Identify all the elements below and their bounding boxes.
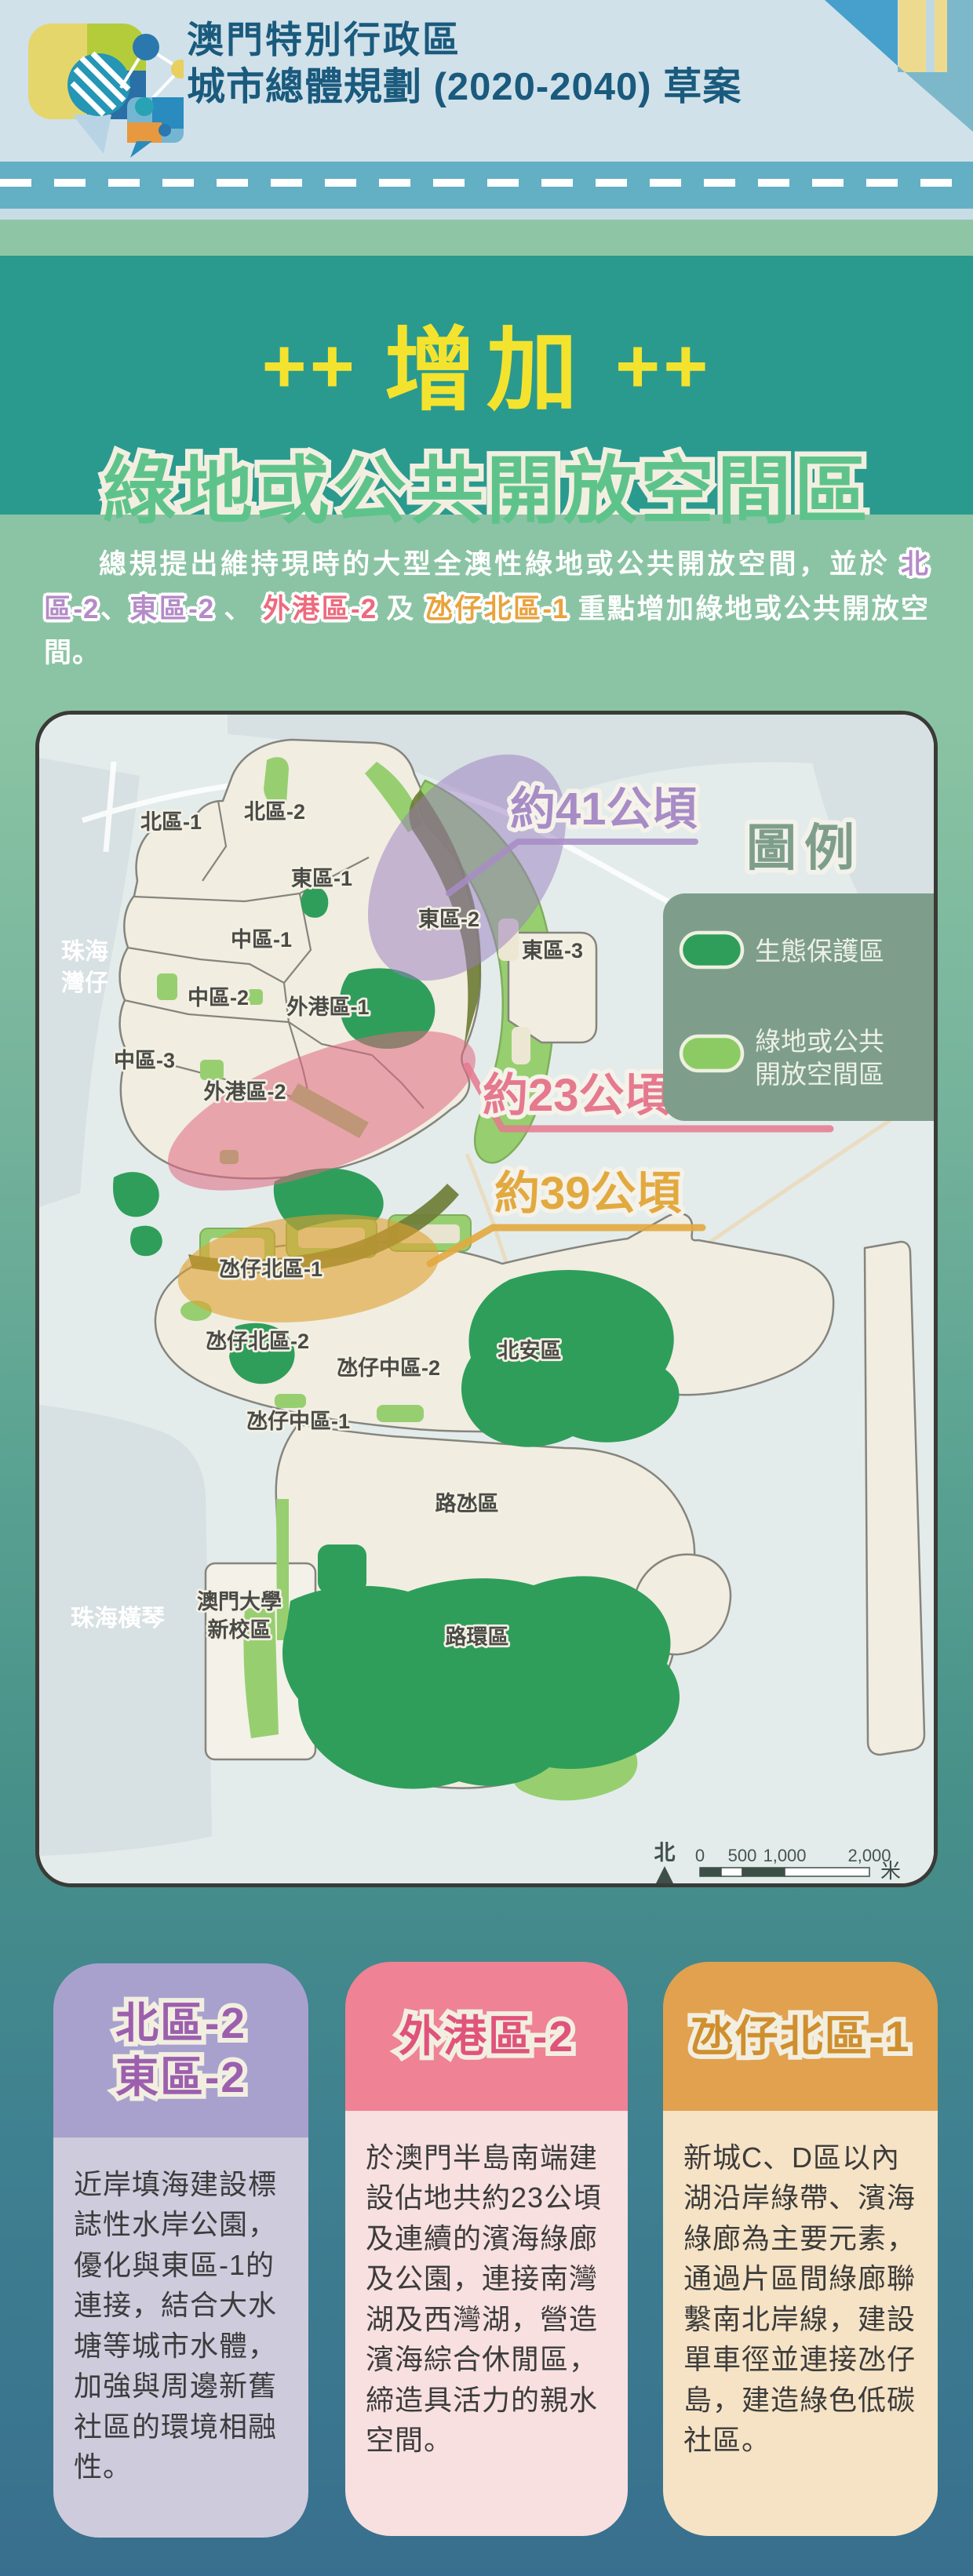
label-central3: 中區-3 [114, 1049, 175, 1072]
card-porto2-title: 外港區-2 外港區-2 [399, 2010, 574, 2064]
label-north2: 北區-2 [244, 800, 305, 824]
speech-bubbles-logo-icon [27, 13, 184, 158]
intro-highlight-east2: 東區-2 [129, 594, 214, 624]
scale-0: 0 [695, 1846, 705, 1865]
label-central2: 中區-2 [188, 986, 249, 1010]
label-um-line1: 澳門大學 [197, 1590, 282, 1614]
card1-title2-text: 東區-2 [115, 2053, 246, 2101]
callout-39ha: 約39公頃 [494, 1168, 682, 1219]
label-pac-on: 北安區 [498, 1339, 562, 1363]
plus-decor-right: ++ [615, 322, 711, 410]
macau-map: 約41公頃 約23公頃 約39公頃 北區-1 北區-2 東區-1 東區-2 東區… [35, 711, 938, 1887]
label-east2: 東區-2 [418, 908, 479, 931]
card-taipanorth1: 氹仔北區-1 氹仔北區-1 新城C、D區以內湖沿岸綠帶、濱海綠廊為主要元素，通過… [663, 1962, 938, 2536]
teal-band [0, 162, 973, 209]
north-label: 北 [654, 1841, 676, 1865]
label-wanzai: 灣仔 [61, 970, 108, 996]
header: 澳門特別行政區 城市總體規劃 (2020-2040) 草案 [0, 0, 973, 162]
intro-sep3: 及 [377, 594, 425, 624]
map-svg: 約41公頃 約23公頃 約39公頃 北區-1 北區-2 東區-1 東區-2 東區… [39, 715, 934, 1883]
legend-item1-label: 生態保護區 [755, 937, 884, 966]
label-east1: 東區-1 [291, 867, 352, 890]
hero-subtitle-text: 綠地或公共開放空間區 [102, 449, 871, 532]
scalebar-segments [700, 1868, 869, 1876]
eco-area-swatch [681, 933, 742, 967]
label-taipa-north2: 氹仔北區-2 [206, 1330, 309, 1353]
plus-decor-left: ++ [262, 322, 358, 410]
label-taipa-central2: 氹仔中區-2 [337, 1356, 440, 1380]
label-porto1: 外港區-1 [286, 995, 369, 1019]
card2-title-text: 外港區-2 [399, 2012, 574, 2061]
label-zhuhai: 珠海 [61, 939, 108, 965]
card-north2-east2: 北區-2 北區-2 東區-2 東區-2 近岸填海建設標誌性水岸公園，優化與東區-… [53, 1963, 308, 2538]
callout-41ha: 約41公頃 [510, 784, 698, 835]
card-north2-east2-title-line1: 北區-2 北區-2 [115, 1996, 246, 2050]
scale-500: 500 [728, 1846, 757, 1865]
label-hengqin: 珠海橫琴 [71, 1606, 165, 1632]
label-taipa-north1: 氹仔北區-1 [219, 1257, 323, 1281]
legend-title: 圖例 [746, 820, 862, 876]
card-taipanorth1-header: 氹仔北區-1 氹仔北區-1 [663, 1962, 938, 2111]
label-um-line2: 新校區 [208, 1617, 271, 1642]
hero-section: ++ 增加 ++ 綠地或公共開放空間區 綠地或公共開放空間區 [0, 256, 973, 515]
open-space-swatch [681, 1036, 742, 1071]
card-taipanorth1-body: 新城C、D區以內湖沿岸綠帶、濱海綠廊為主要元素，通過片區間綠廊聯繫南北岸線，建設… [663, 2111, 938, 2536]
hero-subtitle: 綠地或公共開放空間區 綠地或公共開放空間區 [102, 431, 871, 538]
label-taipa-central1: 氹仔中區-1 [246, 1410, 350, 1433]
card-north2-east2-header: 北區-2 北區-2 東區-2 東區-2 [53, 1963, 308, 2138]
legend-item2-label-line2: 開放空間區 [755, 1060, 884, 1089]
intro-section: 總規提出維持現時的大型全澳性綠地或公共開放空間，並於 北區-2、東區-2 、 外… [0, 515, 973, 711]
intro-sep2: 、 [214, 594, 263, 624]
hero-title: 增加 [384, 297, 589, 428]
green-band [0, 220, 973, 256]
card-taipanorth1-title: 氹仔北區-1 氹仔北區-1 [691, 2010, 911, 2064]
page-title-line1: 澳門特別行政區 [187, 17, 742, 64]
light-band [0, 209, 973, 220]
page-title-line2: 城市總體規劃 (2020-2040) 草案 [187, 64, 742, 111]
label-east3: 東區-3 [522, 939, 583, 962]
card1-title1-text: 北區-2 [115, 1999, 246, 2047]
legend-item2-label-line1: 綠地或公共 [755, 1027, 884, 1056]
intro-lead: 總規提出維持現時的大型全澳性綠地或公共開放空間，並於 [99, 549, 901, 580]
card-north2-east2-title-line2: 東區-2 東區-2 [115, 2050, 246, 2105]
intro-paragraph: 總規提出維持現時的大型全澳性綠地或公共開放空間，並於 北區-2、東區-2 、 外… [0, 515, 973, 676]
card3-title-text: 氹仔北區-1 [691, 2012, 911, 2061]
card-porto2: 外港區-2 外港區-2 於澳門半島南端建設佔地共約23公頃及連續的濱海綠廊及公園… [345, 1962, 628, 2536]
label-central1: 中區-1 [231, 928, 292, 951]
label-coloane: 路環區 [446, 1625, 509, 1649]
card-north2-east2-body: 近岸填海建設標誌性水岸公園，優化與東區-1的連接，結合大水塘等城市水體，加強與周… [53, 2138, 308, 2538]
intro-highlight-porto2: 外港區-2 [263, 594, 377, 624]
label-cotai: 路氹區 [435, 1491, 499, 1515]
scale-1000: 1,000 [763, 1846, 806, 1865]
card-porto2-header: 外港區-2 外港區-2 [345, 1962, 628, 2111]
label-north1: 北區-1 [140, 810, 202, 834]
lower-section: 約41公頃 約23公頃 約39公頃 北區-1 北區-2 東區-1 東區-2 東區… [0, 711, 973, 2576]
dashed-divider [0, 179, 973, 187]
scale-unit: 米 [880, 1859, 901, 1883]
label-porto2: 外港區-2 [203, 1080, 286, 1104]
poster-page: 澳門特別行政區 城市總體規劃 (2020-2040) 草案 ++ 增加 ++ 綠… [0, 0, 973, 2576]
intro-sep1: 、 [100, 594, 130, 624]
callout-23ha: 約23公頃 [483, 1070, 670, 1121]
corner-stripes-decor [816, 0, 973, 137]
card-porto2-body: 於澳門半島南端建設佔地共約23公頃及連續的濱海綠廊及公園，連接南灣湖及西灣湖，營… [345, 2111, 628, 2536]
intro-highlight-taipanorth1: 氹仔北區-1 [425, 594, 569, 624]
